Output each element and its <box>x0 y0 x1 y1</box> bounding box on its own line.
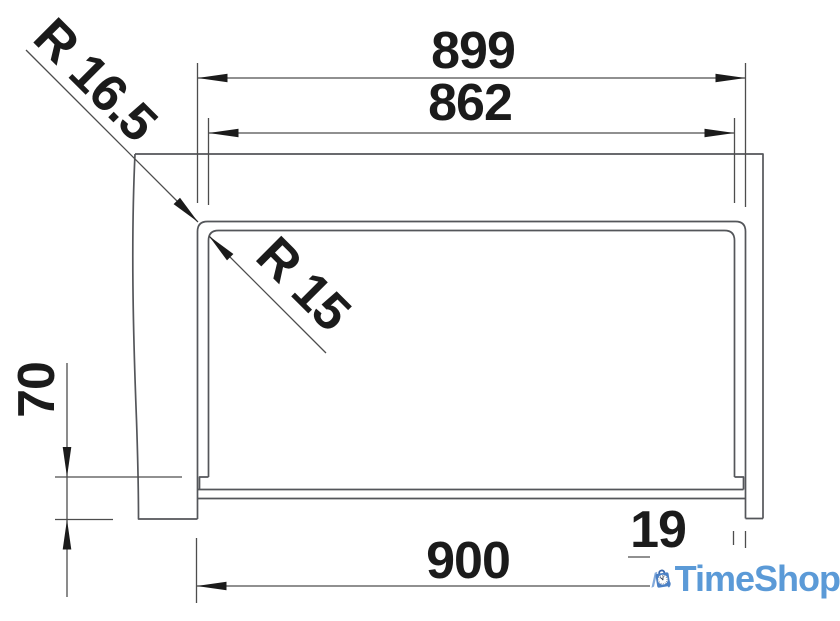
dimension-front-height: 70 <box>11 305 63 475</box>
arrow-r165 <box>174 198 198 222</box>
bowl-step-right <box>735 477 744 490</box>
arrow-70-up <box>63 520 72 550</box>
arrow-899-right <box>716 74 746 83</box>
dimension-overall-width: 899 <box>388 25 558 77</box>
dimension-inner-width: 862 <box>385 77 555 129</box>
arrow-862-right <box>705 129 735 138</box>
arrow-899-left <box>198 74 228 83</box>
timeshop-logo: TimeShop <box>650 548 840 610</box>
timeshop-logo-icon <box>650 549 673 609</box>
timeshop-logo-text: TimeShop <box>675 561 840 597</box>
logo-bag-group <box>655 569 671 589</box>
bowl-step-left <box>200 477 209 490</box>
dimension-base-width: 900 <box>383 535 553 587</box>
arrow-70-down <box>63 447 72 477</box>
arrow-900-left <box>197 582 227 591</box>
dimension-drawing: 899 862 900 19 70 R 16.5 R 15 TimeShop <box>0 0 840 621</box>
arrow-862-left <box>209 129 239 138</box>
